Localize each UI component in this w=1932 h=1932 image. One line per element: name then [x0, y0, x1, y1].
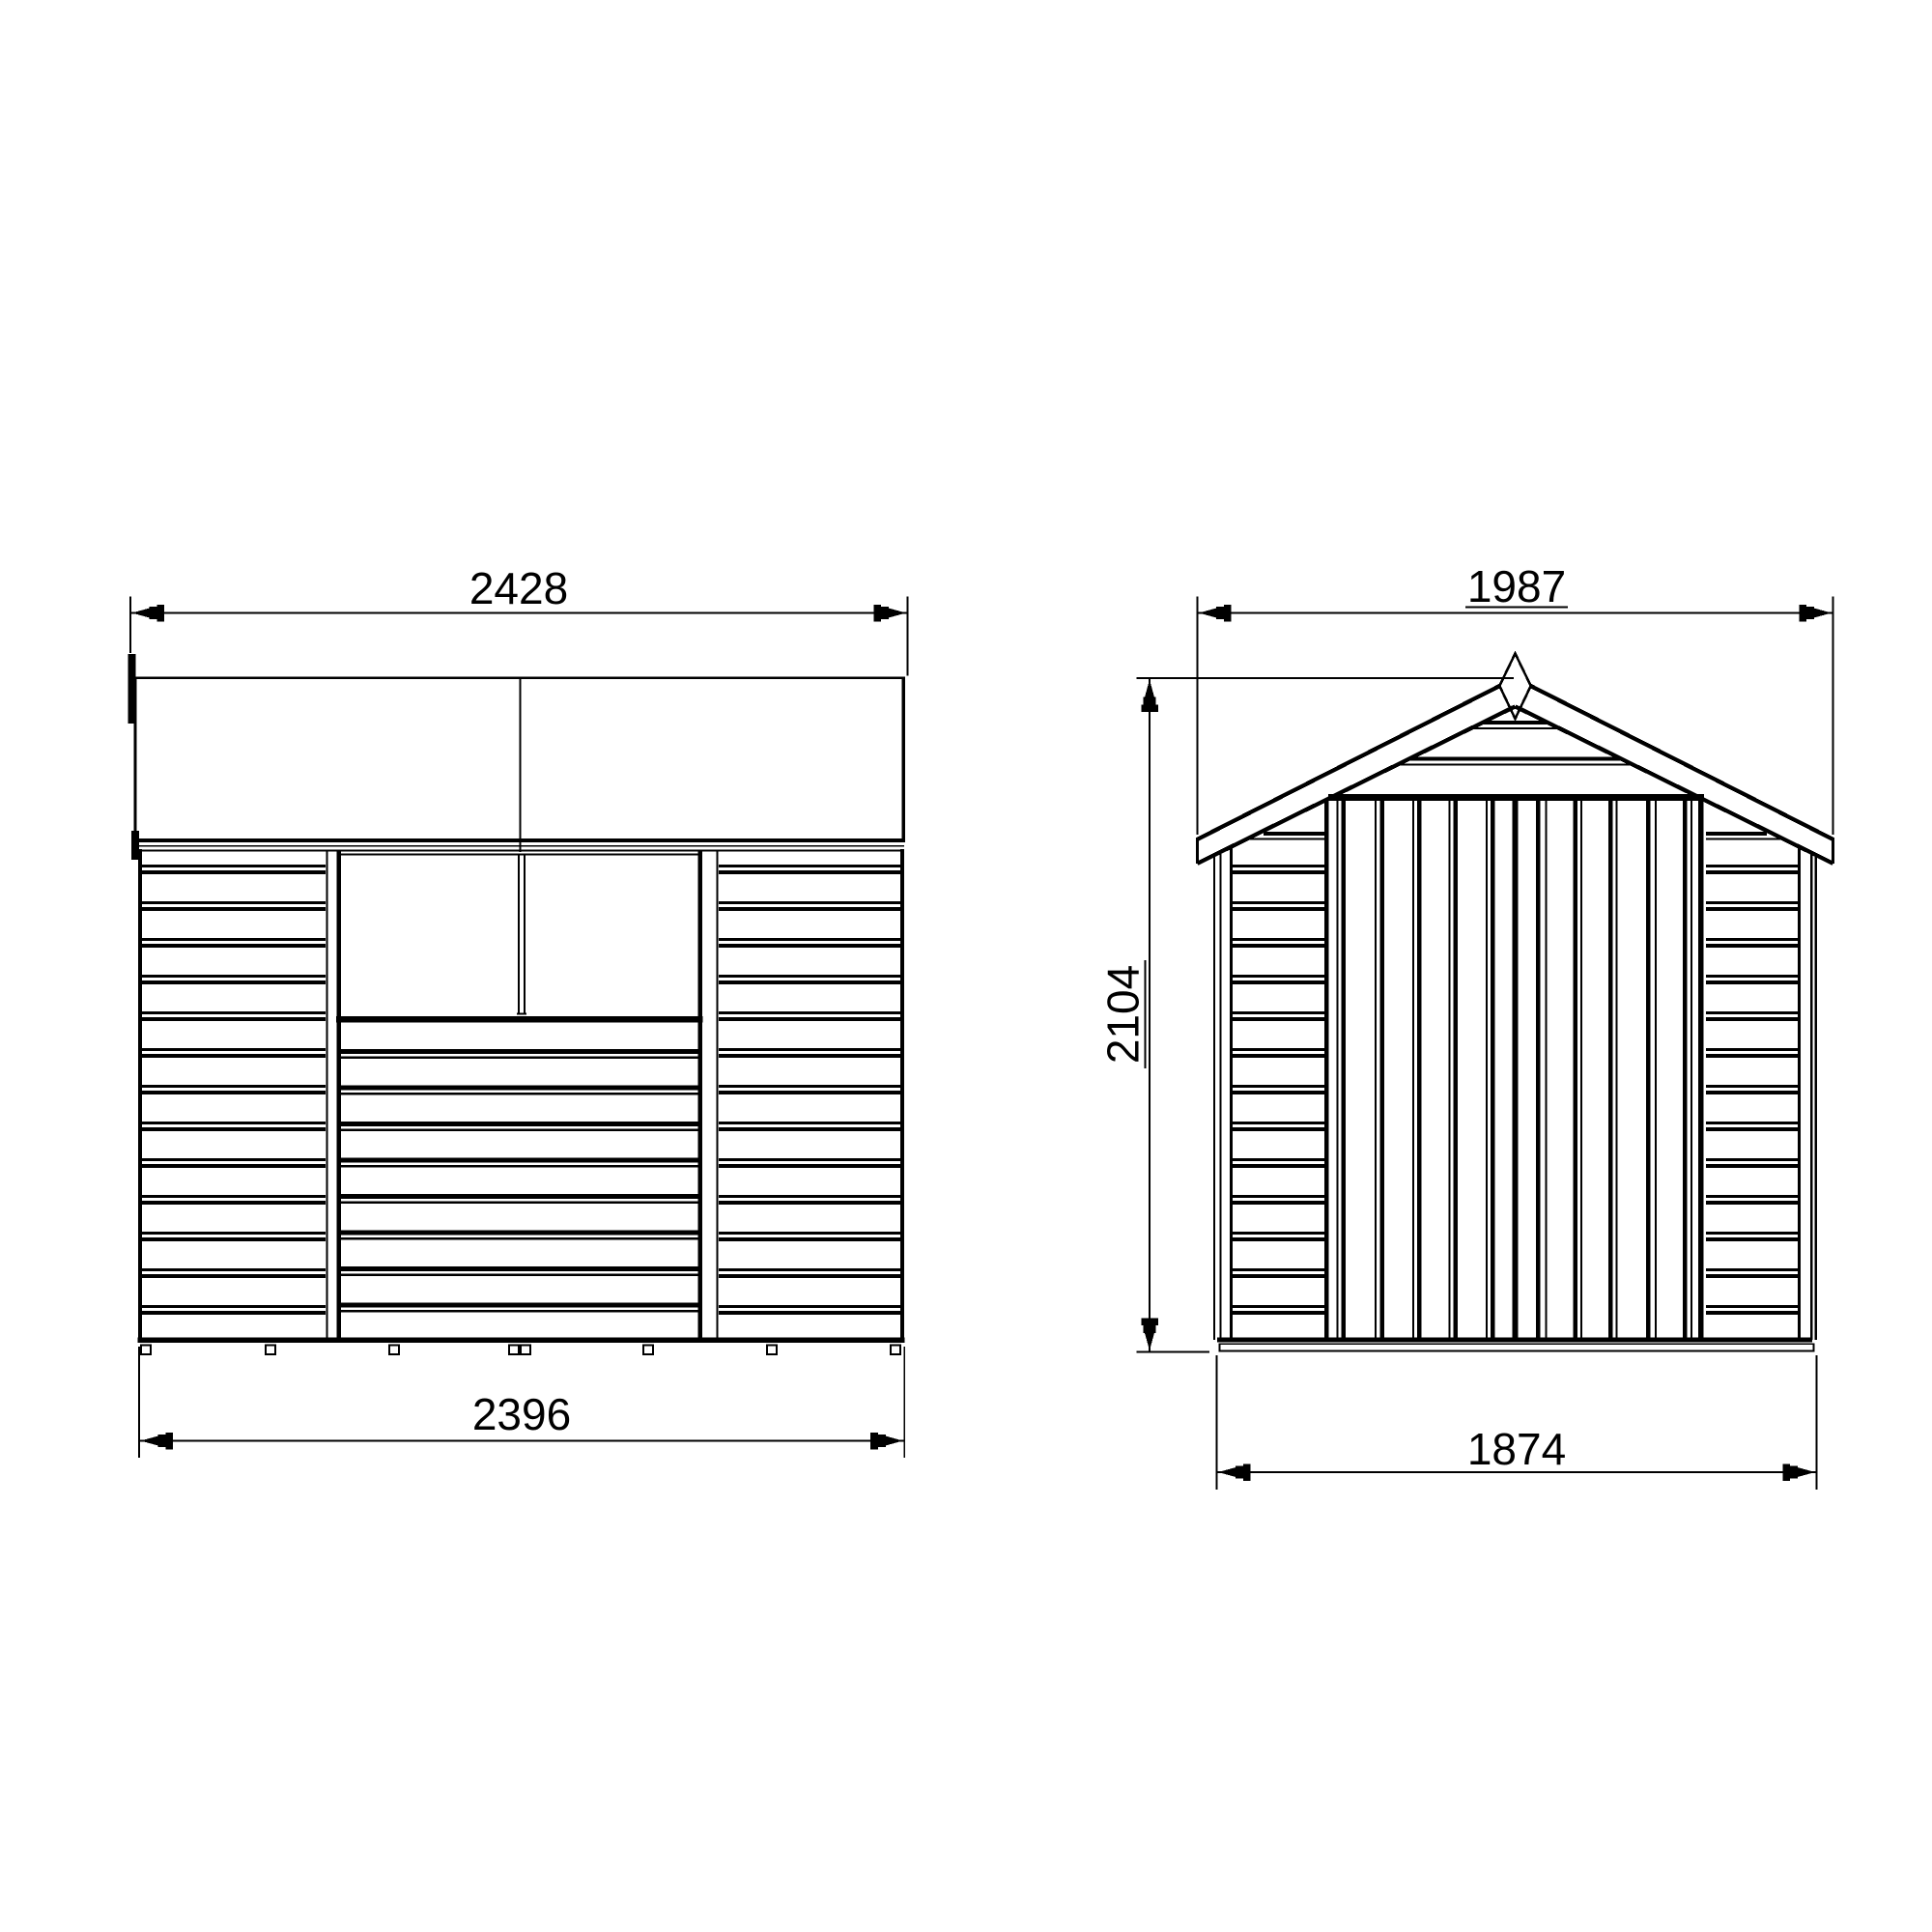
svg-text:2396: 2396 — [472, 1389, 571, 1439]
svg-text:1987: 1987 — [1467, 561, 1566, 611]
svg-text:2104: 2104 — [1098, 965, 1149, 1064]
svg-text:2428: 2428 — [469, 563, 568, 613]
svg-text:1874: 1874 — [1467, 1424, 1566, 1474]
